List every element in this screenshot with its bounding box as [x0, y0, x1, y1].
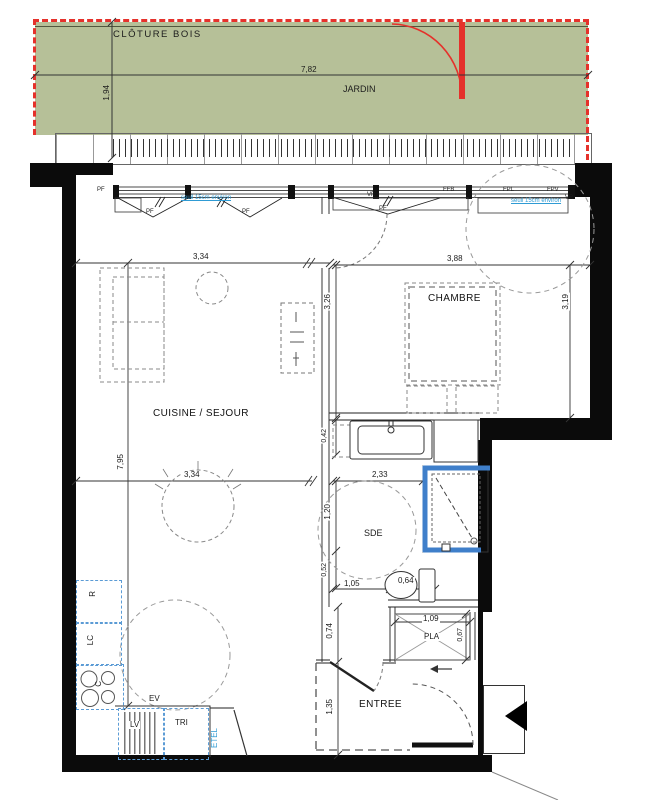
window-pf-a-label: PF: [97, 187, 105, 193]
garden-label: JARDIN: [342, 85, 377, 94]
fence-label: CLÔTURE BOIS: [112, 30, 203, 40]
dim-vanity: 0,42: [321, 428, 328, 444]
window-ffb-label: FFB: [443, 187, 454, 193]
dim-garden-depth: 1,94: [103, 84, 111, 102]
dim-bath-height: 1,20: [324, 503, 332, 521]
shower: [423, 466, 490, 552]
furniture: [100, 268, 500, 542]
dim-living-height: 7,95: [117, 453, 125, 471]
dim-wc-side: 0,52: [321, 562, 328, 578]
dim-wc-width: 1,05: [343, 580, 361, 588]
dim-hall-height: 0,74: [326, 622, 334, 640]
closet-arrow-head: [430, 665, 438, 673]
hob-label: C: [95, 680, 103, 688]
radiator-glyphs: [290, 312, 304, 366]
shutter-vr-left-label: VR: [367, 192, 375, 198]
threshold-note-left: seuil 15cm environ: [181, 195, 231, 201]
bathroom-door-arc: [374, 662, 383, 691]
dim-entry-height: 1,35: [326, 698, 334, 716]
fridge-label: R: [89, 590, 97, 598]
shutter-vr-right-label: VR: [565, 195, 573, 201]
dim-bedroom-width: 3,88: [446, 255, 464, 263]
dimension-lines: [72, 258, 594, 759]
bathroom-door-leaf: [330, 662, 374, 691]
closet-label: PLA: [423, 633, 440, 641]
etel-label: ETEL: [211, 727, 219, 749]
entry-door-arc: [412, 684, 473, 745]
dim-garden-width: 7,82: [300, 66, 318, 74]
gate-swing-arc: [392, 24, 462, 98]
laundry-column: [434, 420, 478, 462]
dim-wc-width-2: 0,64: [397, 577, 415, 585]
window-fpl-label: FPL: [503, 187, 514, 193]
lc-label: LC: [87, 634, 95, 646]
window-pf-b-label: PF: [146, 209, 154, 215]
etel-door: [234, 710, 247, 756]
living-label: CUISINE / SEJOUR: [152, 409, 250, 419]
waste-box: [164, 708, 209, 760]
window-pf-c-label: PF: [242, 209, 250, 215]
bedroom-label: CHAMBRE: [427, 294, 482, 304]
dim-living-width: 3,34: [192, 253, 210, 261]
sink-label: EV: [148, 695, 161, 703]
dim-closet-depth: 0,67: [457, 627, 464, 643]
entry-label: ENTREE: [358, 700, 403, 710]
window-fpv-label: FPV: [547, 187, 559, 193]
toilet: [385, 569, 435, 602]
lc-box: [76, 622, 122, 666]
dim-bath-width: 2,33: [371, 471, 389, 479]
dishwasher-label: LV: [129, 721, 140, 729]
floor-plan: CLÔTURE BOIS JARDIN 7,82 1,94 PF PF PF P…: [0, 0, 646, 800]
waste-label: TRI: [174, 719, 189, 727]
vanity: [350, 421, 432, 459]
bathroom-label: SDE: [363, 529, 384, 538]
casement-swings: [118, 196, 440, 217]
threshold-note-right: seuil 15cm environ: [511, 198, 561, 204]
fridge-box: [76, 580, 122, 624]
dim-living-width-2: 3,34: [183, 471, 201, 479]
window-pf-d-label: PF: [379, 206, 387, 212]
dishwasher-hatch: [124, 712, 156, 754]
porch-step: [492, 772, 558, 800]
bedroom-door-arc: [333, 214, 387, 268]
dim-bedroom-height-west: 3,26: [324, 293, 332, 311]
dim-closet-width: 1,09: [422, 615, 440, 623]
dim-bedroom-height-east: 3,19: [562, 293, 570, 311]
